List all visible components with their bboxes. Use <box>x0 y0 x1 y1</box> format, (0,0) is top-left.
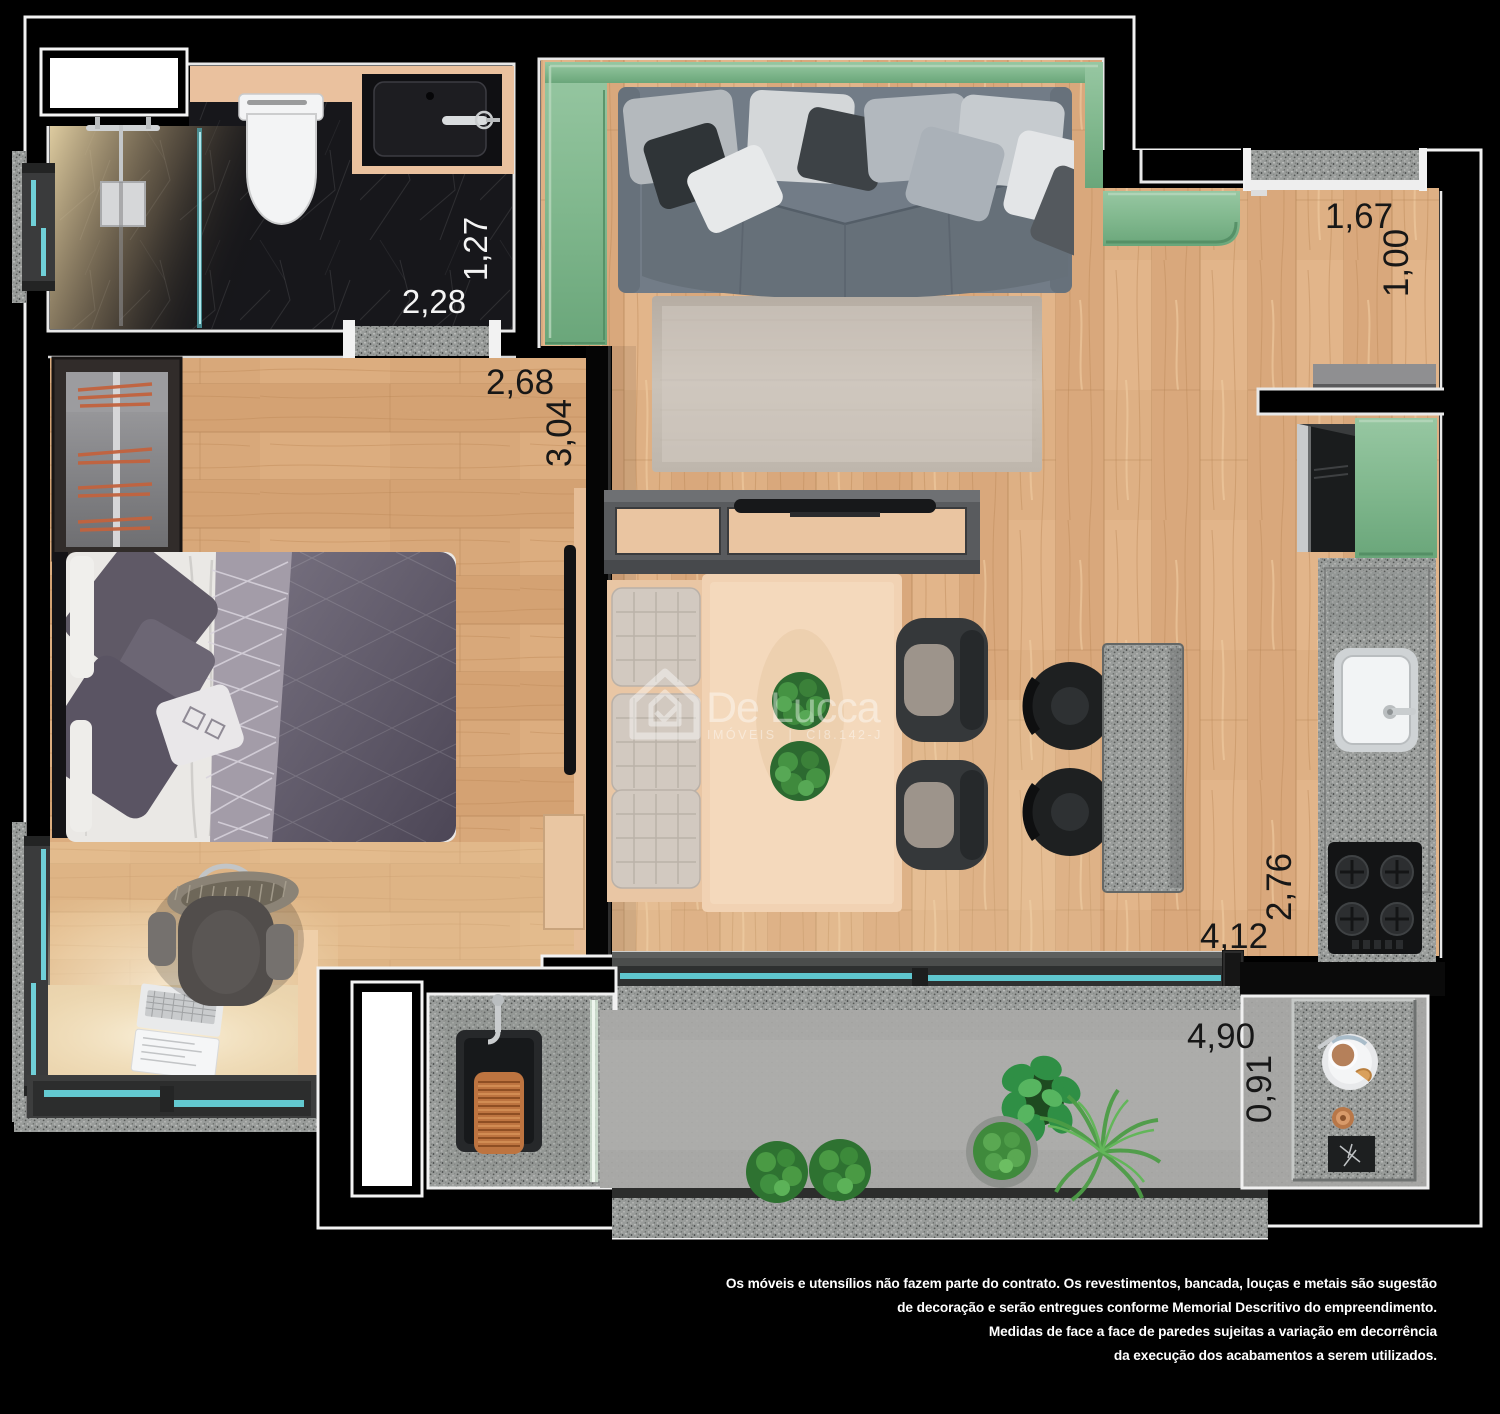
svg-text:4,90: 4,90 <box>1187 1017 1255 1056</box>
svg-text:1,27: 1,27 <box>457 217 494 281</box>
svg-text:2,68: 2,68 <box>486 363 554 402</box>
svg-text:2,28: 2,28 <box>402 283 466 320</box>
svg-text:1,00: 1,00 <box>1377 229 1416 297</box>
svg-text:0,91: 0,91 <box>1240 1055 1279 1123</box>
svg-text:De Lucca: De Lucca <box>706 684 881 732</box>
svg-text:Medidas de face a face de pare: Medidas de face a face de paredes sujeit… <box>989 1324 1438 1339</box>
svg-text:2,76: 2,76 <box>1260 853 1299 921</box>
svg-text:de decoração e serão entregues: de decoração e serão entregues conforme … <box>897 1300 1437 1315</box>
svg-text:IMÓVEIS | CI8.142-J: IMÓVEIS | CI8.142-J <box>707 727 883 742</box>
svg-text:3,04: 3,04 <box>540 399 579 467</box>
svg-text:Os móveis e utensílios não faz: Os móveis e utensílios não fazem parte d… <box>726 1276 1437 1291</box>
svg-text:da execução dos acabamentos a: da execução dos acabamentos a serem util… <box>1114 1348 1437 1363</box>
